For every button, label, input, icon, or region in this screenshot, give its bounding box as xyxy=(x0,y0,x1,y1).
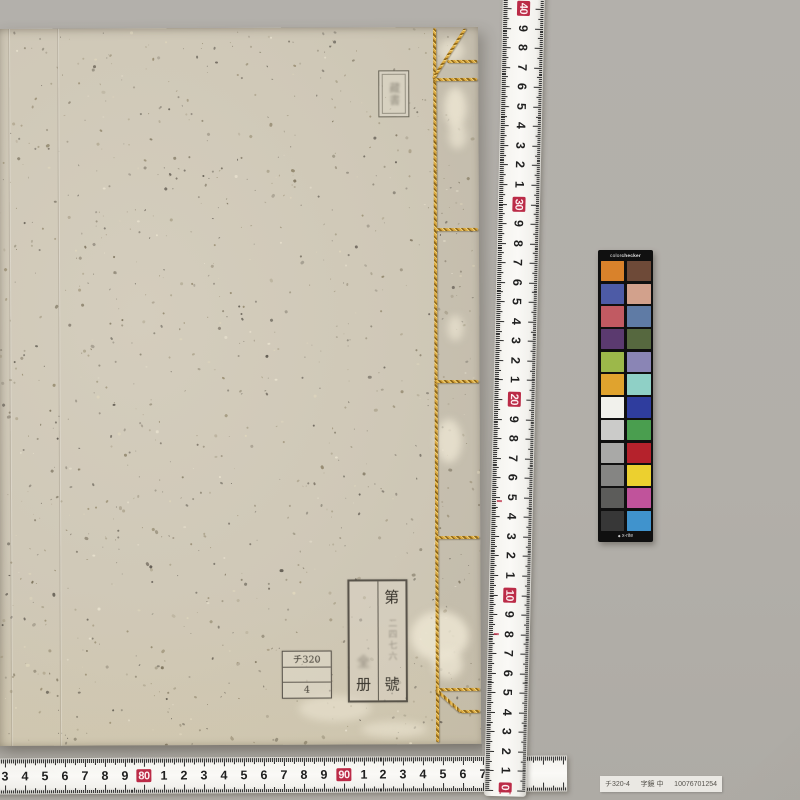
ruler-number: 2 xyxy=(379,767,386,781)
ruler-number: 5 xyxy=(514,103,528,110)
call-number-row2 xyxy=(283,667,331,683)
colorchecker-brand: ◆ x-rite xyxy=(601,531,651,540)
volume-label-number-faint: 二四七六 xyxy=(385,618,398,662)
volume-label-satsu: 册 xyxy=(356,673,371,694)
ownership-stamp-text: 藏書 xyxy=(386,82,402,106)
color-swatch xyxy=(601,374,625,394)
ruler-number: 5 xyxy=(510,298,524,305)
ruler-number: 8 xyxy=(101,769,108,783)
volume-label-dai: 第 xyxy=(384,586,399,607)
volume-number-label: 全 册 第 二四七六 號 xyxy=(347,579,408,702)
color-swatch xyxy=(627,374,651,394)
ruler-number: 3 xyxy=(200,768,207,782)
ruler-number: 4 xyxy=(419,767,426,781)
ruler-number: 7 xyxy=(501,650,515,657)
book-cover: 藏書 全 册 第 二四七六 號 チ320 4 xyxy=(0,27,481,746)
ruler-number: 4 xyxy=(514,122,528,129)
color-swatch xyxy=(601,465,625,485)
ruler-number: 3 xyxy=(504,533,518,540)
color-swatch xyxy=(627,420,651,440)
horizontal-ruler: 34567898012345678990123456789 xyxy=(0,756,567,795)
ruler-number: 6 xyxy=(61,769,68,783)
color-swatch xyxy=(627,329,651,349)
ruler-number: 20 xyxy=(508,392,521,408)
ruler-number: 90 xyxy=(336,768,351,781)
color-swatch xyxy=(601,488,625,508)
ruler-number: 9 xyxy=(502,611,516,618)
ownership-stamp: 藏書 xyxy=(378,70,409,117)
ruler-number: 1 xyxy=(360,768,367,782)
colorchecker-swatches xyxy=(601,261,651,531)
sticker-call-number: チ320-4 xyxy=(605,779,630,789)
ruler-number: 1 xyxy=(508,376,522,383)
ruler-number: 8 xyxy=(511,240,525,247)
ruler-number: 6 xyxy=(459,767,466,781)
ruler-number: 7 xyxy=(280,768,287,782)
ruler-number: 0 xyxy=(499,782,512,792)
color-swatch xyxy=(601,352,625,372)
ruler-number: 7 xyxy=(506,455,520,462)
ruler-number: 2 xyxy=(508,357,522,364)
color-swatch xyxy=(627,443,651,463)
ruler-number: 40 xyxy=(517,1,530,17)
color-swatch xyxy=(627,306,651,326)
ruler-number: 6 xyxy=(505,474,519,481)
ruler-number: 8 xyxy=(502,631,516,638)
volume-label-right-column: 第 二四七六 號 xyxy=(378,581,406,700)
colorchecker-card: colorchecker ◆ x-rite xyxy=(598,250,653,542)
ruler-number: 9 xyxy=(511,220,525,227)
ruler-number: 4 xyxy=(505,513,519,520)
ruler-number: 4 xyxy=(220,768,227,782)
sticker-barcode-number: 10076701254 xyxy=(674,781,717,788)
ruler-number: 1 xyxy=(503,572,517,579)
ruler-number: 3 xyxy=(399,767,406,781)
ruler-number: 5 xyxy=(505,494,519,501)
color-swatch xyxy=(601,284,625,304)
ruler-number: 9 xyxy=(121,769,128,783)
ruler-number: 5 xyxy=(439,767,446,781)
ruler-number: 9 xyxy=(320,768,327,782)
color-swatch xyxy=(627,284,651,304)
volume-label-left-column: 全 册 xyxy=(349,581,378,700)
catalog-sticker: チ320-4 字鏡 中 10076701254 xyxy=(600,776,722,792)
color-swatch xyxy=(601,261,625,281)
ruler-number: 1 xyxy=(160,769,167,783)
ruler-number: 8 xyxy=(516,44,530,51)
ruler-number: 2 xyxy=(513,161,527,168)
ruler-number: 3 xyxy=(499,728,513,735)
ruler-number: 10 xyxy=(503,588,516,604)
color-swatch xyxy=(627,261,651,281)
ruler-number: 2 xyxy=(504,552,518,559)
photo-scene: 藏書 全 册 第 二四七六 號 チ320 4 34567898012345678… xyxy=(0,0,800,800)
color-swatch xyxy=(627,488,651,508)
ruler-number: 8 xyxy=(300,768,307,782)
ruler-number: 3 xyxy=(509,337,523,344)
ruler-number: 80 xyxy=(136,769,151,782)
ruler-number: 1 xyxy=(499,767,513,774)
ruler-number: 5 xyxy=(41,769,48,783)
color-swatch xyxy=(627,511,651,531)
colorchecker-title: colorchecker xyxy=(601,252,651,260)
ruler-number: 7 xyxy=(81,769,88,783)
ruler-number: 9 xyxy=(516,25,530,32)
color-swatch xyxy=(601,329,625,349)
ruler-number: 1 xyxy=(512,181,526,188)
ruler-number: 2 xyxy=(499,748,513,755)
colorchecker-title-bold: checker xyxy=(621,254,641,259)
sticker-title: 字鏡 中 xyxy=(641,779,664,789)
volume-label-gou: 號 xyxy=(385,673,400,694)
color-swatch xyxy=(627,352,651,372)
ruler-number: 30 xyxy=(512,197,525,213)
color-swatch xyxy=(601,306,625,326)
ruler-number: 7 xyxy=(515,64,529,71)
color-swatch xyxy=(627,465,651,485)
color-swatch xyxy=(601,397,625,417)
call-number-label: チ320 4 xyxy=(282,651,332,699)
ruler-number: 3 xyxy=(513,142,527,149)
ruler-number: 5 xyxy=(500,689,514,696)
call-number-row1: チ320 xyxy=(283,652,331,668)
color-swatch xyxy=(627,397,651,417)
ruler-number: 3 xyxy=(1,769,8,783)
call-number-row3: 4 xyxy=(283,683,331,698)
ruler-number: 4 xyxy=(509,318,523,325)
ruler-number: 6 xyxy=(510,279,524,286)
volume-label-faint-char: 全 xyxy=(357,651,370,670)
binding-threads xyxy=(0,27,481,746)
ruler-number: 4 xyxy=(500,709,514,716)
ruler-number: 7 xyxy=(511,259,525,266)
ruler-number: 8 xyxy=(506,435,520,442)
color-swatch xyxy=(601,443,625,463)
ruler-number: 6 xyxy=(515,83,529,90)
ruler-number: 5 xyxy=(240,768,247,782)
vertical-ruler: 4098765432130987654321209876543211098765… xyxy=(484,0,545,797)
ruler-number: 6 xyxy=(501,670,515,677)
ruler-number: 9 xyxy=(507,416,521,423)
colorchecker-title-light: color xyxy=(610,254,621,259)
ruler-number: 6 xyxy=(260,768,267,782)
color-swatch xyxy=(601,420,625,440)
ruler-number: 2 xyxy=(180,768,187,782)
color-swatch xyxy=(601,511,625,531)
xrite-brand-name: x-rite xyxy=(622,533,633,539)
ruler-number: 4 xyxy=(21,769,28,783)
xrite-logo-icon: ◆ xyxy=(618,534,621,538)
